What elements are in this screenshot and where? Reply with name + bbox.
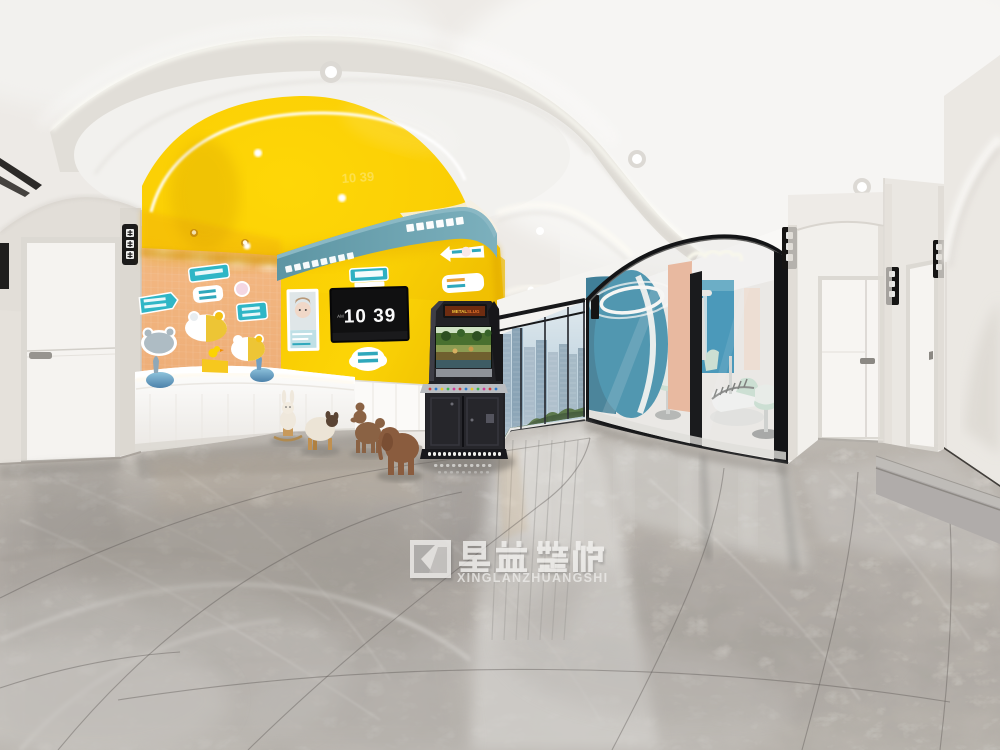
svg-text:10 39: 10 39 [341, 169, 375, 186]
svg-text:XINGLANZHUANGSHI: XINGLANZHUANGSHI [457, 571, 608, 585]
svg-text:METAL: METAL [452, 309, 467, 314]
svg-text:AM: AM [337, 314, 344, 319]
svg-text:SLUG: SLUG [467, 309, 480, 314]
svg-text:10 39: 10 39 [344, 305, 397, 327]
